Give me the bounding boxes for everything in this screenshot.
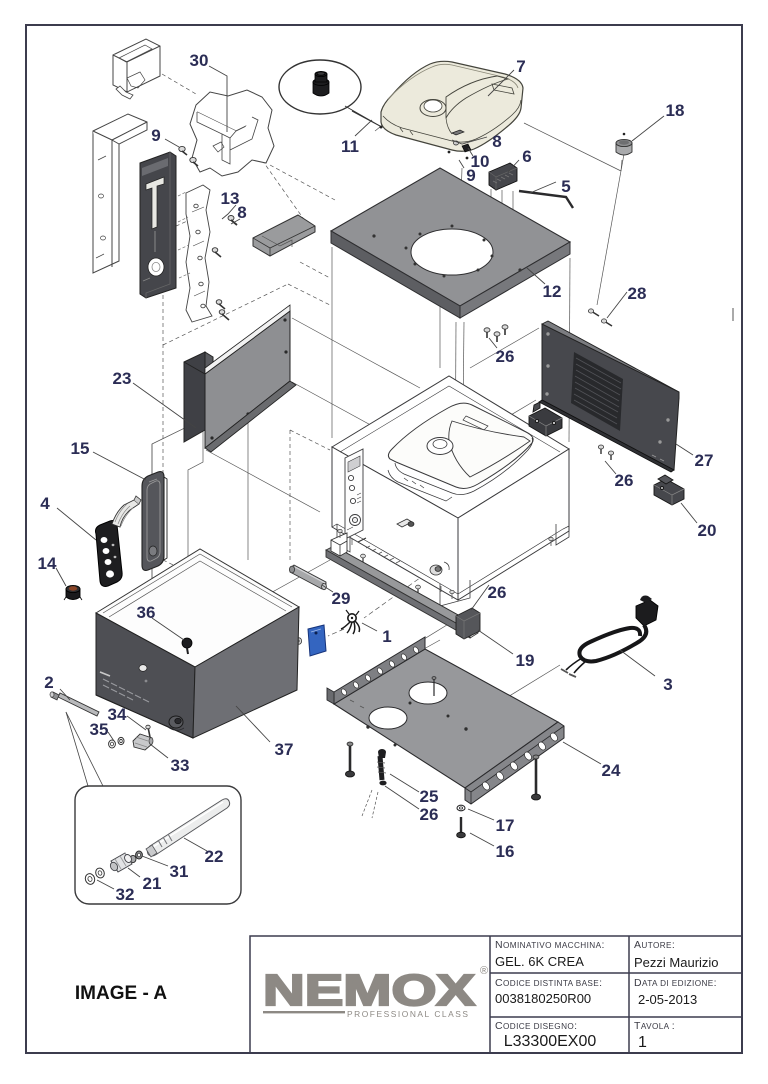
- svg-text:26: 26: [488, 583, 507, 602]
- svg-text:23: 23: [113, 369, 132, 388]
- svg-text:6: 6: [522, 147, 531, 166]
- svg-text:31: 31: [170, 862, 189, 881]
- svg-text:27: 27: [695, 451, 714, 470]
- svg-text:37: 37: [275, 740, 294, 759]
- svg-text:21: 21: [143, 874, 162, 893]
- svg-text:®: ®: [480, 965, 488, 977]
- svg-text:4: 4: [40, 494, 50, 513]
- svg-text:IMAGE - A: IMAGE - A: [75, 983, 167, 1004]
- svg-text:22: 22: [205, 847, 224, 866]
- svg-text:15: 15: [71, 439, 90, 458]
- svg-text:18: 18: [666, 101, 685, 120]
- svg-text:Pezzi Maurizio: Pezzi Maurizio: [634, 955, 719, 970]
- svg-text:17: 17: [496, 816, 515, 835]
- svg-text:26: 26: [615, 471, 634, 490]
- svg-text:28: 28: [628, 284, 647, 303]
- svg-text:26: 26: [420, 805, 439, 824]
- svg-text:25: 25: [420, 787, 439, 806]
- svg-text:36: 36: [137, 603, 156, 622]
- svg-text:GEL. 6K CREA: GEL. 6K CREA: [495, 954, 584, 969]
- svg-text:11: 11: [341, 137, 359, 156]
- svg-text:3: 3: [663, 675, 672, 694]
- svg-text:12: 12: [543, 282, 562, 301]
- svg-text:34: 34: [108, 705, 127, 724]
- svg-text:NOMINATIVO MACCHINA:: NOMINATIVO MACCHINA:: [495, 939, 605, 951]
- svg-text:1: 1: [382, 627, 391, 646]
- svg-text:8: 8: [237, 203, 246, 222]
- svg-text:33: 33: [171, 756, 190, 775]
- svg-text:L33300EX00: L33300EX00: [504, 1033, 597, 1050]
- svg-text:PROFESSIONAL CLASS: PROFESSIONAL CLASS: [347, 1009, 470, 1019]
- svg-text:7: 7: [516, 57, 525, 76]
- svg-text:9: 9: [466, 166, 475, 185]
- svg-text:2-05-2013: 2-05-2013: [638, 992, 697, 1007]
- svg-text:AUTORE:: AUTORE:: [634, 939, 675, 951]
- svg-text:CODICE DISTINTA BASE:: CODICE DISTINTA BASE:: [495, 977, 602, 989]
- svg-text:CODICE DISEGNO:: CODICE DISEGNO:: [495, 1020, 577, 1032]
- svg-text:20: 20: [698, 521, 717, 540]
- svg-text:14: 14: [38, 554, 57, 573]
- svg-text:5: 5: [561, 177, 570, 196]
- svg-text:1: 1: [638, 1034, 647, 1051]
- svg-text:8: 8: [492, 132, 501, 151]
- svg-text:TAVOLA :: TAVOLA :: [634, 1020, 675, 1032]
- svg-text:NEMOX: NEMOX: [263, 966, 475, 1015]
- svg-text:30: 30: [190, 51, 209, 70]
- svg-text:35: 35: [90, 720, 109, 739]
- svg-text:24: 24: [602, 761, 621, 780]
- svg-text:19: 19: [516, 651, 535, 670]
- svg-text:29: 29: [332, 589, 351, 608]
- svg-text:16: 16: [496, 842, 515, 861]
- svg-text:26: 26: [496, 347, 515, 366]
- svg-text:0038180250R00: 0038180250R00: [495, 991, 591, 1006]
- svg-text:DATA DI EDIZIONE:: DATA DI EDIZIONE:: [634, 977, 717, 989]
- svg-text:9: 9: [151, 126, 160, 145]
- svg-text:2: 2: [44, 673, 53, 692]
- svg-text:32: 32: [116, 885, 135, 904]
